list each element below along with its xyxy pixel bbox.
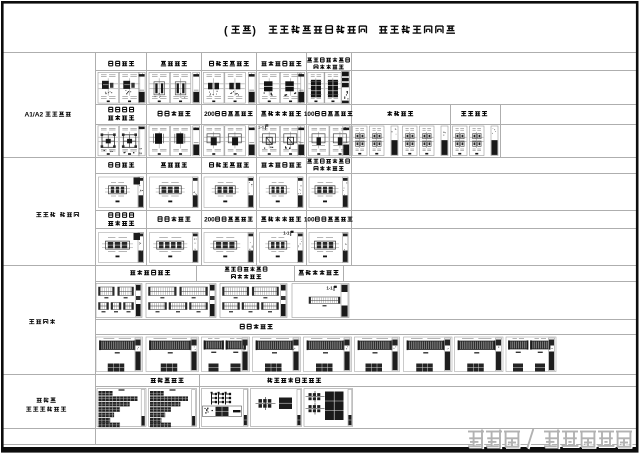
svg-text:A1/A2: A1/A2 — [24, 112, 43, 119]
svg-text:): ) — [252, 25, 256, 37]
svg-text:100: 100 — [304, 111, 315, 118]
svg-text:1-1: 1-1 — [283, 231, 290, 236]
svg-text:1-1: 1-1 — [327, 286, 334, 291]
svg-text:200: 200 — [204, 217, 215, 224]
svg-text:100: 100 — [304, 217, 315, 224]
svg-text:200: 200 — [204, 111, 215, 118]
svg-text:(: ( — [224, 25, 228, 37]
